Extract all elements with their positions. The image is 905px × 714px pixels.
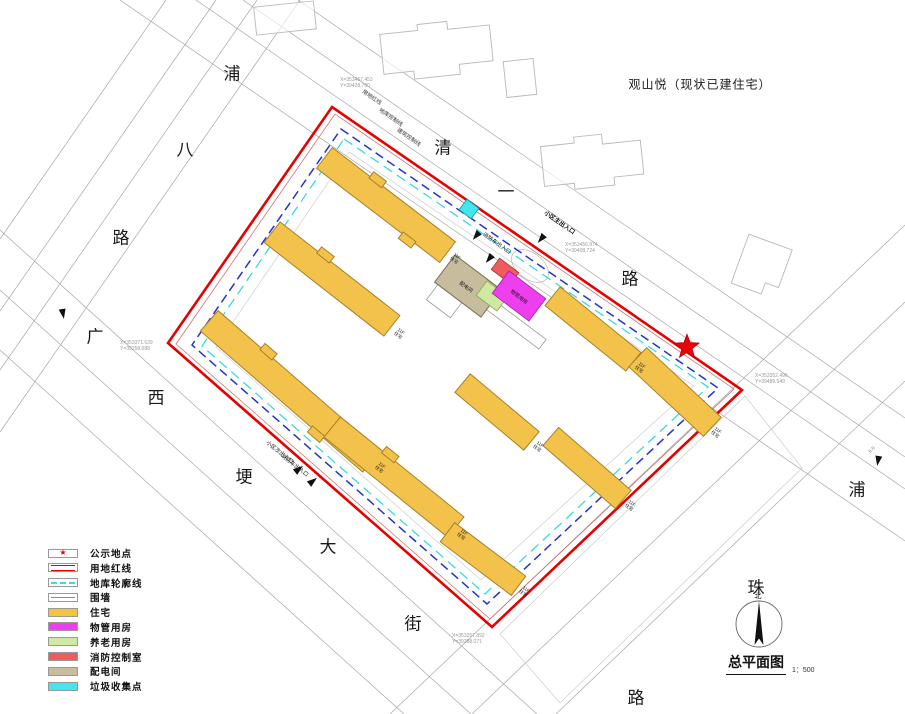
residential-building: [543, 427, 631, 508]
north-compass: [736, 601, 782, 647]
street-char-gxgdj-0: 广: [87, 323, 104, 348]
street-char-gxgdj-1: 西: [148, 384, 165, 409]
legend-swatch-residential: [48, 608, 78, 617]
street-char-pubalu-0: 浦: [224, 60, 241, 85]
street-char-gxgdj-3: 大: [320, 533, 337, 558]
legend-item-fire-control: 消防控制室: [48, 652, 143, 662]
legend-item-public-notice: ★ 公示地点: [48, 548, 143, 558]
street-char-qingyilu-0: 清: [435, 134, 452, 159]
street-char-gxgdj-4: 街: [405, 610, 422, 635]
street-char-pubalu-2: 路: [113, 224, 130, 249]
drawing-scale: 1：500: [792, 667, 815, 674]
legend-item-elderly-care: 养老用房: [48, 637, 143, 647]
legend-item-residential: 住宅: [48, 607, 143, 617]
residential-building: [440, 523, 526, 596]
coordinate-label: X=353371.639Y=39258.088: [120, 341, 153, 353]
legend-swatch-elderly: [48, 637, 78, 646]
legend-swatch-thin-line: [48, 593, 78, 602]
public-notice-star: [675, 334, 700, 358]
coordinate-label: X=353257.892Y=39288.071: [452, 634, 485, 646]
street-char-qingyilu-1: 一: [498, 178, 515, 203]
coordinate-label: X=353456.974Y=39408.724: [565, 243, 598, 255]
residential-building: [455, 374, 539, 450]
garbage-collection-point: [459, 199, 479, 218]
compass-needle: [755, 601, 764, 645]
street-char-qingyilu-2: 路: [622, 265, 639, 290]
star-icon: ★: [59, 549, 66, 557]
title-block: 总平面图1：500: [726, 652, 815, 675]
residential-building: [324, 412, 468, 537]
legend-item-garbage: 垃圾收集点: [48, 681, 143, 691]
street-char-puzhulu-2: 路: [628, 684, 645, 709]
drawing-title: 总平面图: [726, 652, 786, 675]
residential-building: [545, 287, 641, 371]
legend-swatch-power: [48, 667, 78, 676]
street-char-puzhulu-0: 浦: [849, 476, 866, 501]
street-char-gxgdj-2: 埂: [236, 463, 253, 488]
legend-item-basement-outline: 地库轮廓线: [48, 578, 143, 588]
coordinate-label: X=353352.496Y=39489.549: [755, 374, 788, 386]
legend-item-power-distribution: 配电间: [48, 666, 143, 676]
street-char-pubalu-1: 八: [177, 136, 194, 161]
legend: ★ 公示地点 用地红线 地库轮廓线 围墙 住宅 物管用房 养老用房: [48, 548, 143, 696]
legend-swatch-dashed-line: [48, 578, 78, 587]
legend-swatch-double-line: [48, 563, 78, 572]
residential-building: [264, 217, 403, 336]
north-label: 北: [755, 591, 762, 601]
legend-item-property-mgmt: 物管用房: [48, 622, 143, 632]
residential-building: [313, 143, 459, 267]
existing-building-note: 观山悦（现状已建住宅）: [628, 76, 771, 93]
legend-swatch-star: ★: [48, 549, 78, 558]
site-plan-canvas: 观山悦（现状已建住宅） 浦 八 路 清 一 路 广 西 埂 大 街 浦 珠 路 …: [0, 0, 905, 714]
legend-item-wall: 围墙: [48, 592, 143, 602]
legend-swatch-fire: [48, 652, 78, 661]
residential-building: [629, 348, 721, 437]
coordinate-label: X=353467.453Y=39428.700: [340, 78, 373, 90]
legend-swatch-property: [48, 622, 78, 631]
facility-cluster: [426, 199, 546, 349]
legend-swatch-garbage: [48, 682, 78, 691]
legend-item-red-line: 用地红线: [48, 563, 143, 573]
